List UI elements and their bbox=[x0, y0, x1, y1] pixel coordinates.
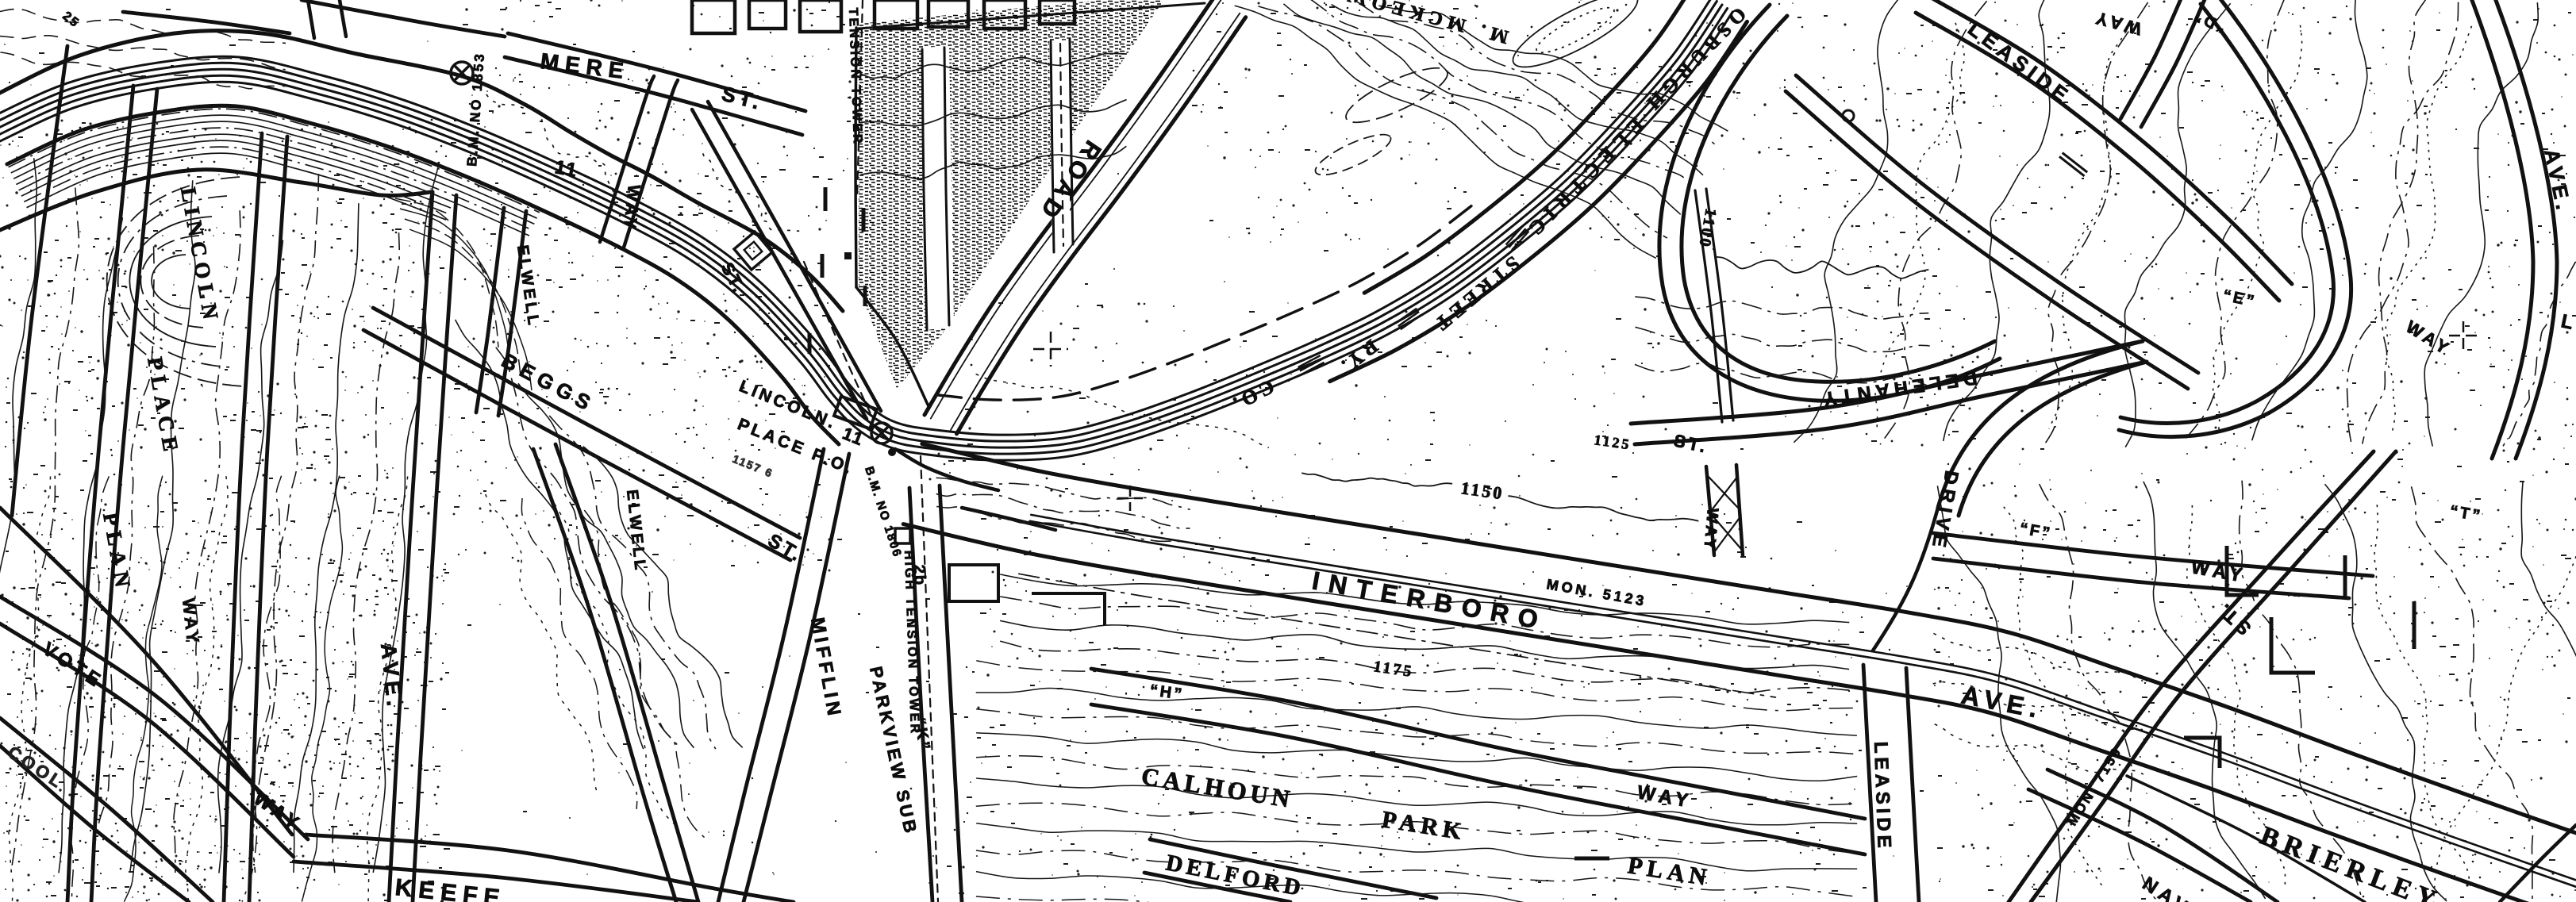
svg-text:2b: 2b bbox=[910, 564, 929, 586]
svg-text:11: 11 bbox=[553, 156, 580, 182]
svg-text:LEASIDE: LEASIDE bbox=[1870, 741, 1895, 852]
